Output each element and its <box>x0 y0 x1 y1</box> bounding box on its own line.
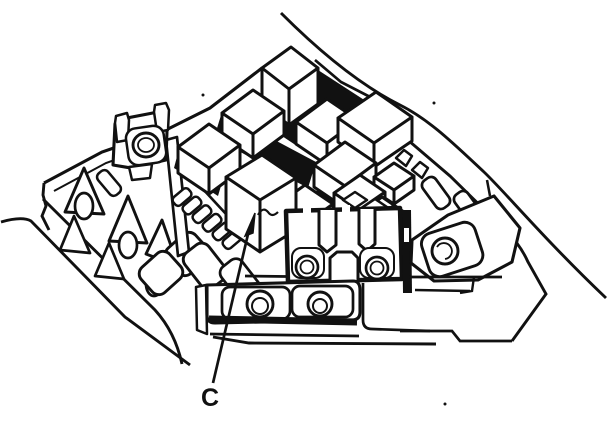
svg-text:C: C <box>201 384 219 412</box>
